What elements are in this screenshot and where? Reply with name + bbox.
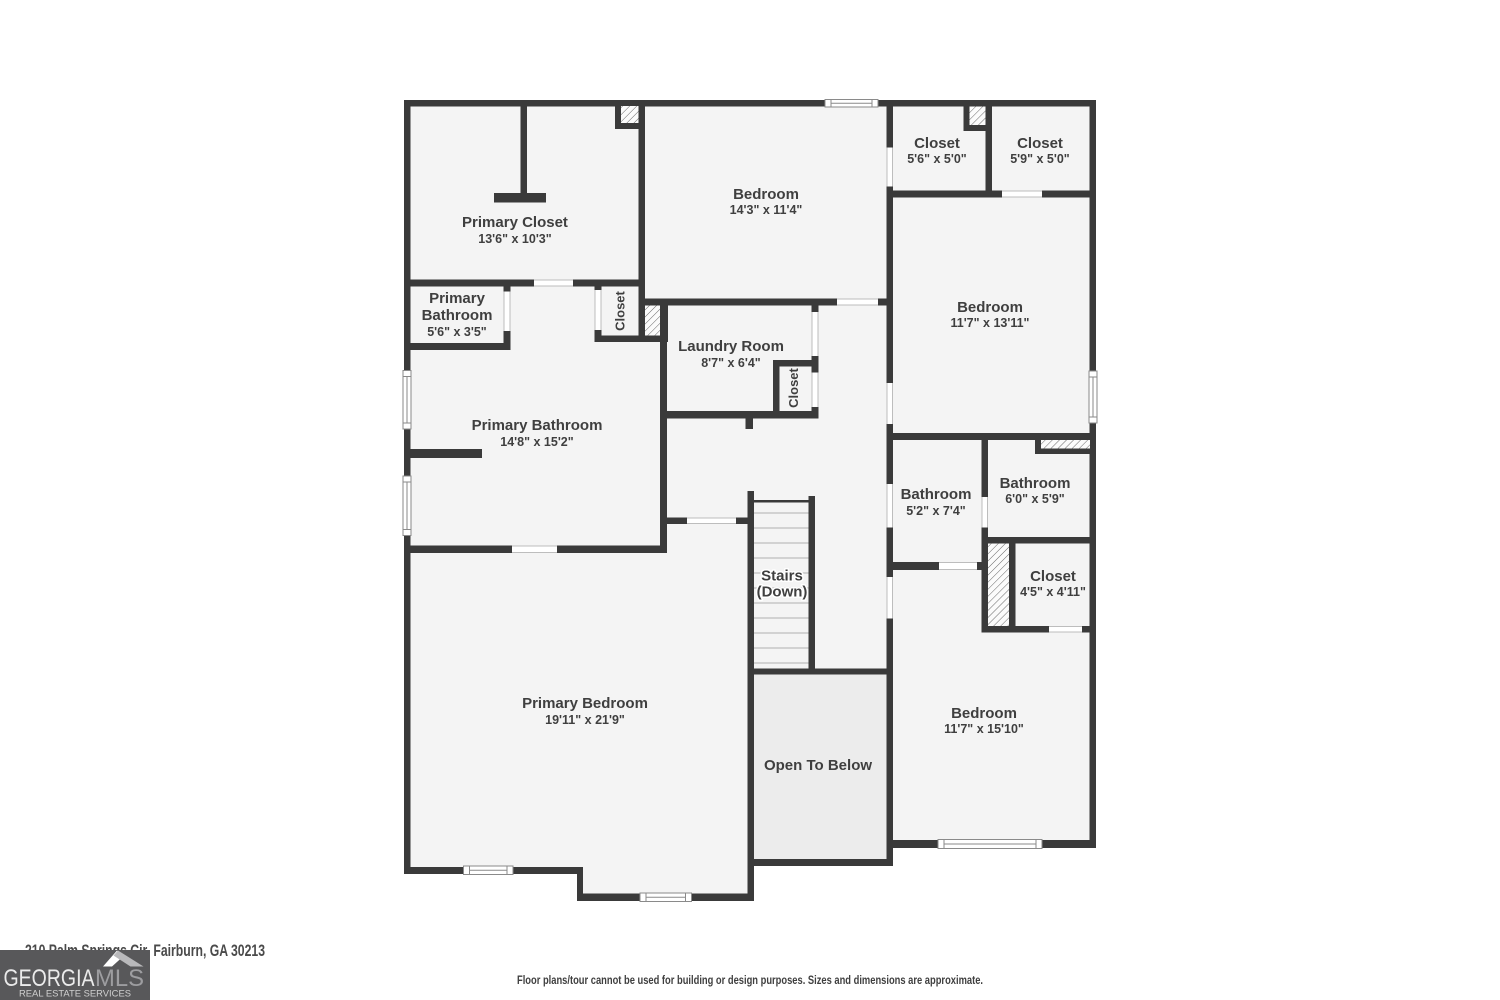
- svg-text:13'6" x 10'3": 13'6" x 10'3": [478, 232, 551, 246]
- svg-text:Bedroom: Bedroom: [957, 299, 1023, 316]
- svg-text:Floor plans/tour cannot be use: Floor plans/tour cannot be used for buil…: [517, 975, 983, 987]
- svg-text:6'0" x 5'9": 6'0" x 5'9": [1005, 492, 1065, 506]
- svg-text:Closet: Closet: [914, 135, 960, 152]
- svg-text:Closet: Closet: [786, 367, 801, 407]
- svg-text:5'9" x 5'0": 5'9" x 5'0": [1010, 152, 1070, 166]
- svg-text:11'7" x 13'11": 11'7" x 13'11": [951, 316, 1030, 330]
- svg-text:(Down): (Down): [757, 584, 808, 601]
- svg-text:8'7" x 6'4": 8'7" x 6'4": [701, 356, 761, 370]
- svg-text:Bathroom: Bathroom: [1000, 475, 1071, 492]
- svg-text:Primary Bedroom: Primary Bedroom: [522, 695, 648, 712]
- svg-text:Bathroom: Bathroom: [901, 486, 972, 503]
- svg-text:Stairs: Stairs: [761, 568, 803, 585]
- svg-text:Primary Bathroom: Primary Bathroom: [472, 417, 603, 434]
- svg-text:14'8" x 15'2": 14'8" x 15'2": [500, 435, 573, 449]
- svg-text:Laundry Room: Laundry Room: [678, 338, 784, 355]
- svg-text:Primary: Primary: [429, 290, 486, 307]
- svg-text:19'11" x 21'9": 19'11" x 21'9": [545, 713, 625, 727]
- svg-text:Open To Below: Open To Below: [764, 757, 872, 774]
- svg-text:11'7" x 15'10": 11'7" x 15'10": [944, 722, 1024, 736]
- svg-text:Bedroom: Bedroom: [951, 705, 1017, 722]
- svg-text:Bedroom: Bedroom: [733, 186, 799, 203]
- svg-text:Primary Closet: Primary Closet: [462, 214, 568, 231]
- svg-text:Bathroom: Bathroom: [422, 307, 493, 324]
- svg-text:REAL ESTATE SERVICES: REAL ESTATE SERVICES: [19, 989, 131, 999]
- svg-text:5'6" x 5'0": 5'6" x 5'0": [907, 152, 967, 166]
- svg-text:Closet: Closet: [1017, 135, 1063, 152]
- svg-text:Closet: Closet: [1030, 568, 1076, 585]
- svg-text:5'6" x 3'5": 5'6" x 3'5": [427, 325, 487, 339]
- svg-text:Closet: Closet: [613, 290, 628, 330]
- svg-text:14'3" x 11'4": 14'3" x 11'4": [730, 203, 803, 217]
- svg-text:5'2" x 7'4": 5'2" x 7'4": [906, 504, 966, 518]
- svg-text:4'5" x 4'11": 4'5" x 4'11": [1020, 585, 1086, 599]
